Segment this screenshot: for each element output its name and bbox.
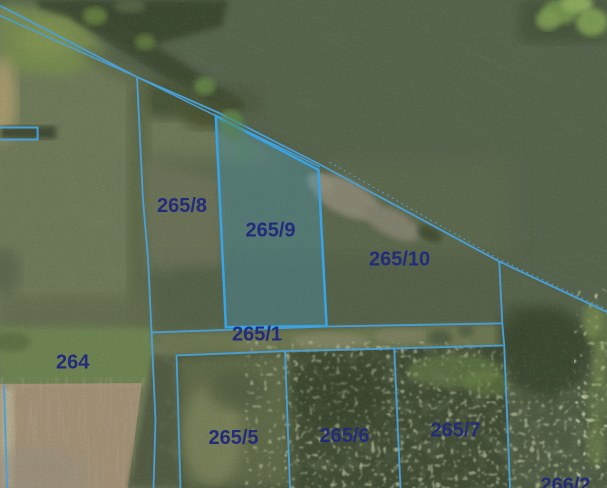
svg-text:264: 264 [56,352,90,374]
svg-text:265/7: 265/7 [431,420,481,442]
svg-text:265/6: 265/6 [320,425,370,447]
svg-text:265/5: 265/5 [209,427,259,449]
svg-text:265/10: 265/10 [369,249,430,271]
svg-text:265/9: 265/9 [246,220,296,242]
svg-text:265/8: 265/8 [157,195,207,217]
svg-text:266/2: 266/2 [541,475,591,488]
svg-text:265/1: 265/1 [232,324,282,346]
